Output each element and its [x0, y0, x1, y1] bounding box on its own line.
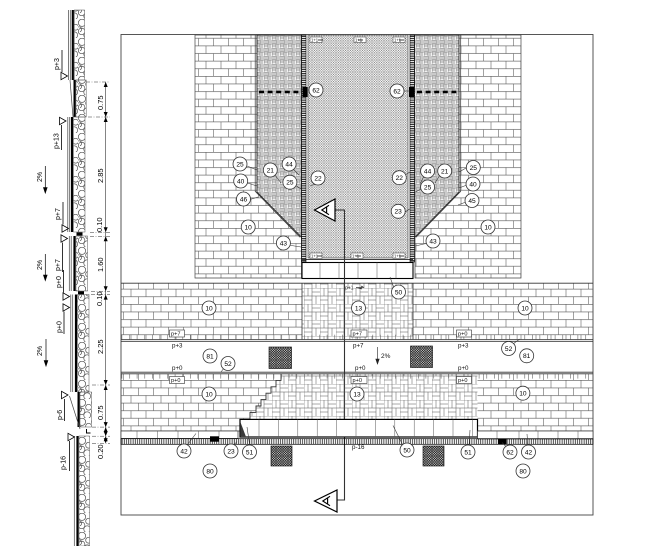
svg-text:10: 10: [519, 391, 527, 398]
svg-text:50: 50: [395, 289, 403, 296]
svg-text:2%: 2%: [37, 346, 44, 356]
svg-text:p+0: p+0: [458, 378, 468, 384]
svg-text:23: 23: [227, 448, 235, 455]
svg-text:80: 80: [206, 468, 214, 475]
svg-text:p+13: p+13: [54, 133, 61, 149]
svg-text:22: 22: [396, 175, 404, 182]
svg-text:44: 44: [424, 168, 432, 175]
svg-text:p-16: p-16: [61, 456, 68, 470]
svg-text:0.10: 0.10: [95, 291, 104, 306]
svg-text:2%: 2%: [37, 260, 44, 270]
svg-text:2.25: 2.25: [96, 339, 105, 354]
svg-text:p+0: p+0: [458, 332, 468, 338]
svg-text:40: 40: [237, 178, 245, 185]
svg-text:p-16: p-16: [352, 444, 365, 451]
svg-text:62: 62: [506, 449, 514, 456]
svg-text:p+7: p+7: [55, 208, 62, 220]
svg-text:10: 10: [484, 224, 492, 231]
svg-text:81: 81: [206, 353, 214, 360]
svg-text:p+3: p+3: [54, 58, 61, 70]
svg-text:13: 13: [353, 391, 361, 398]
svg-text:1.60: 1.60: [96, 257, 105, 272]
svg-text:2%: 2%: [381, 353, 391, 360]
svg-text:p+7: p+7: [55, 259, 62, 271]
svg-text:40: 40: [469, 181, 477, 188]
svg-text:p+0: p+0: [172, 365, 183, 372]
svg-text:2.85: 2.85: [96, 168, 105, 183]
svg-text:25: 25: [236, 161, 244, 168]
svg-text:10: 10: [245, 224, 253, 231]
svg-text:p+7: p+7: [353, 343, 364, 350]
svg-text:62: 62: [393, 88, 401, 95]
svg-text:p+0: p+0: [355, 365, 366, 372]
svg-text:2%: 2%: [37, 172, 44, 182]
svg-text:21: 21: [267, 167, 275, 174]
svg-text:0.20: 0.20: [96, 444, 105, 459]
svg-text:p+1: p+1: [345, 286, 354, 292]
svg-text:p+7: p+7: [171, 332, 181, 338]
svg-text:p+0: p+0: [57, 321, 64, 333]
svg-text:21: 21: [441, 168, 449, 175]
svg-text:81: 81: [523, 353, 531, 360]
svg-text:62: 62: [312, 87, 320, 94]
svg-text:43: 43: [280, 240, 288, 247]
svg-text:25: 25: [470, 165, 478, 172]
svg-text:p+7: p+7: [353, 332, 363, 338]
svg-text:10: 10: [205, 391, 213, 398]
svg-text:52: 52: [505, 346, 513, 353]
svg-text:80: 80: [519, 468, 527, 475]
svg-text:45: 45: [468, 198, 476, 205]
svg-text:p-6: p-6: [57, 410, 64, 420]
svg-text:p+0: p+0: [458, 365, 469, 372]
svg-text:p+0: p+0: [353, 378, 363, 384]
svg-text:50: 50: [403, 447, 411, 454]
svg-text:22: 22: [314, 175, 322, 182]
svg-text:43: 43: [429, 238, 437, 245]
svg-text:52: 52: [224, 361, 232, 368]
svg-text:42: 42: [525, 449, 533, 456]
svg-text:10: 10: [205, 305, 213, 312]
svg-text:42: 42: [180, 448, 188, 455]
svg-text:1+1: 1+1: [311, 38, 319, 43]
svg-text:25: 25: [286, 180, 294, 187]
svg-text:51: 51: [246, 449, 254, 456]
svg-text:p+0: p+0: [56, 276, 63, 288]
svg-text:p+3: p+3: [458, 343, 469, 350]
svg-text:0.75: 0.75: [96, 95, 105, 110]
svg-text:10: 10: [521, 305, 529, 312]
svg-text:13: 13: [355, 305, 363, 312]
svg-text:44: 44: [285, 161, 293, 168]
svg-text:0.75: 0.75: [96, 405, 105, 420]
svg-text:p+3: p+3: [172, 343, 183, 350]
svg-text:23: 23: [395, 209, 403, 216]
svg-text:46: 46: [240, 196, 248, 203]
svg-text:p+0: p+0: [171, 378, 181, 384]
svg-text:51: 51: [464, 449, 472, 456]
svg-text:25: 25: [424, 184, 432, 191]
svg-text:0.10: 0.10: [95, 217, 104, 232]
